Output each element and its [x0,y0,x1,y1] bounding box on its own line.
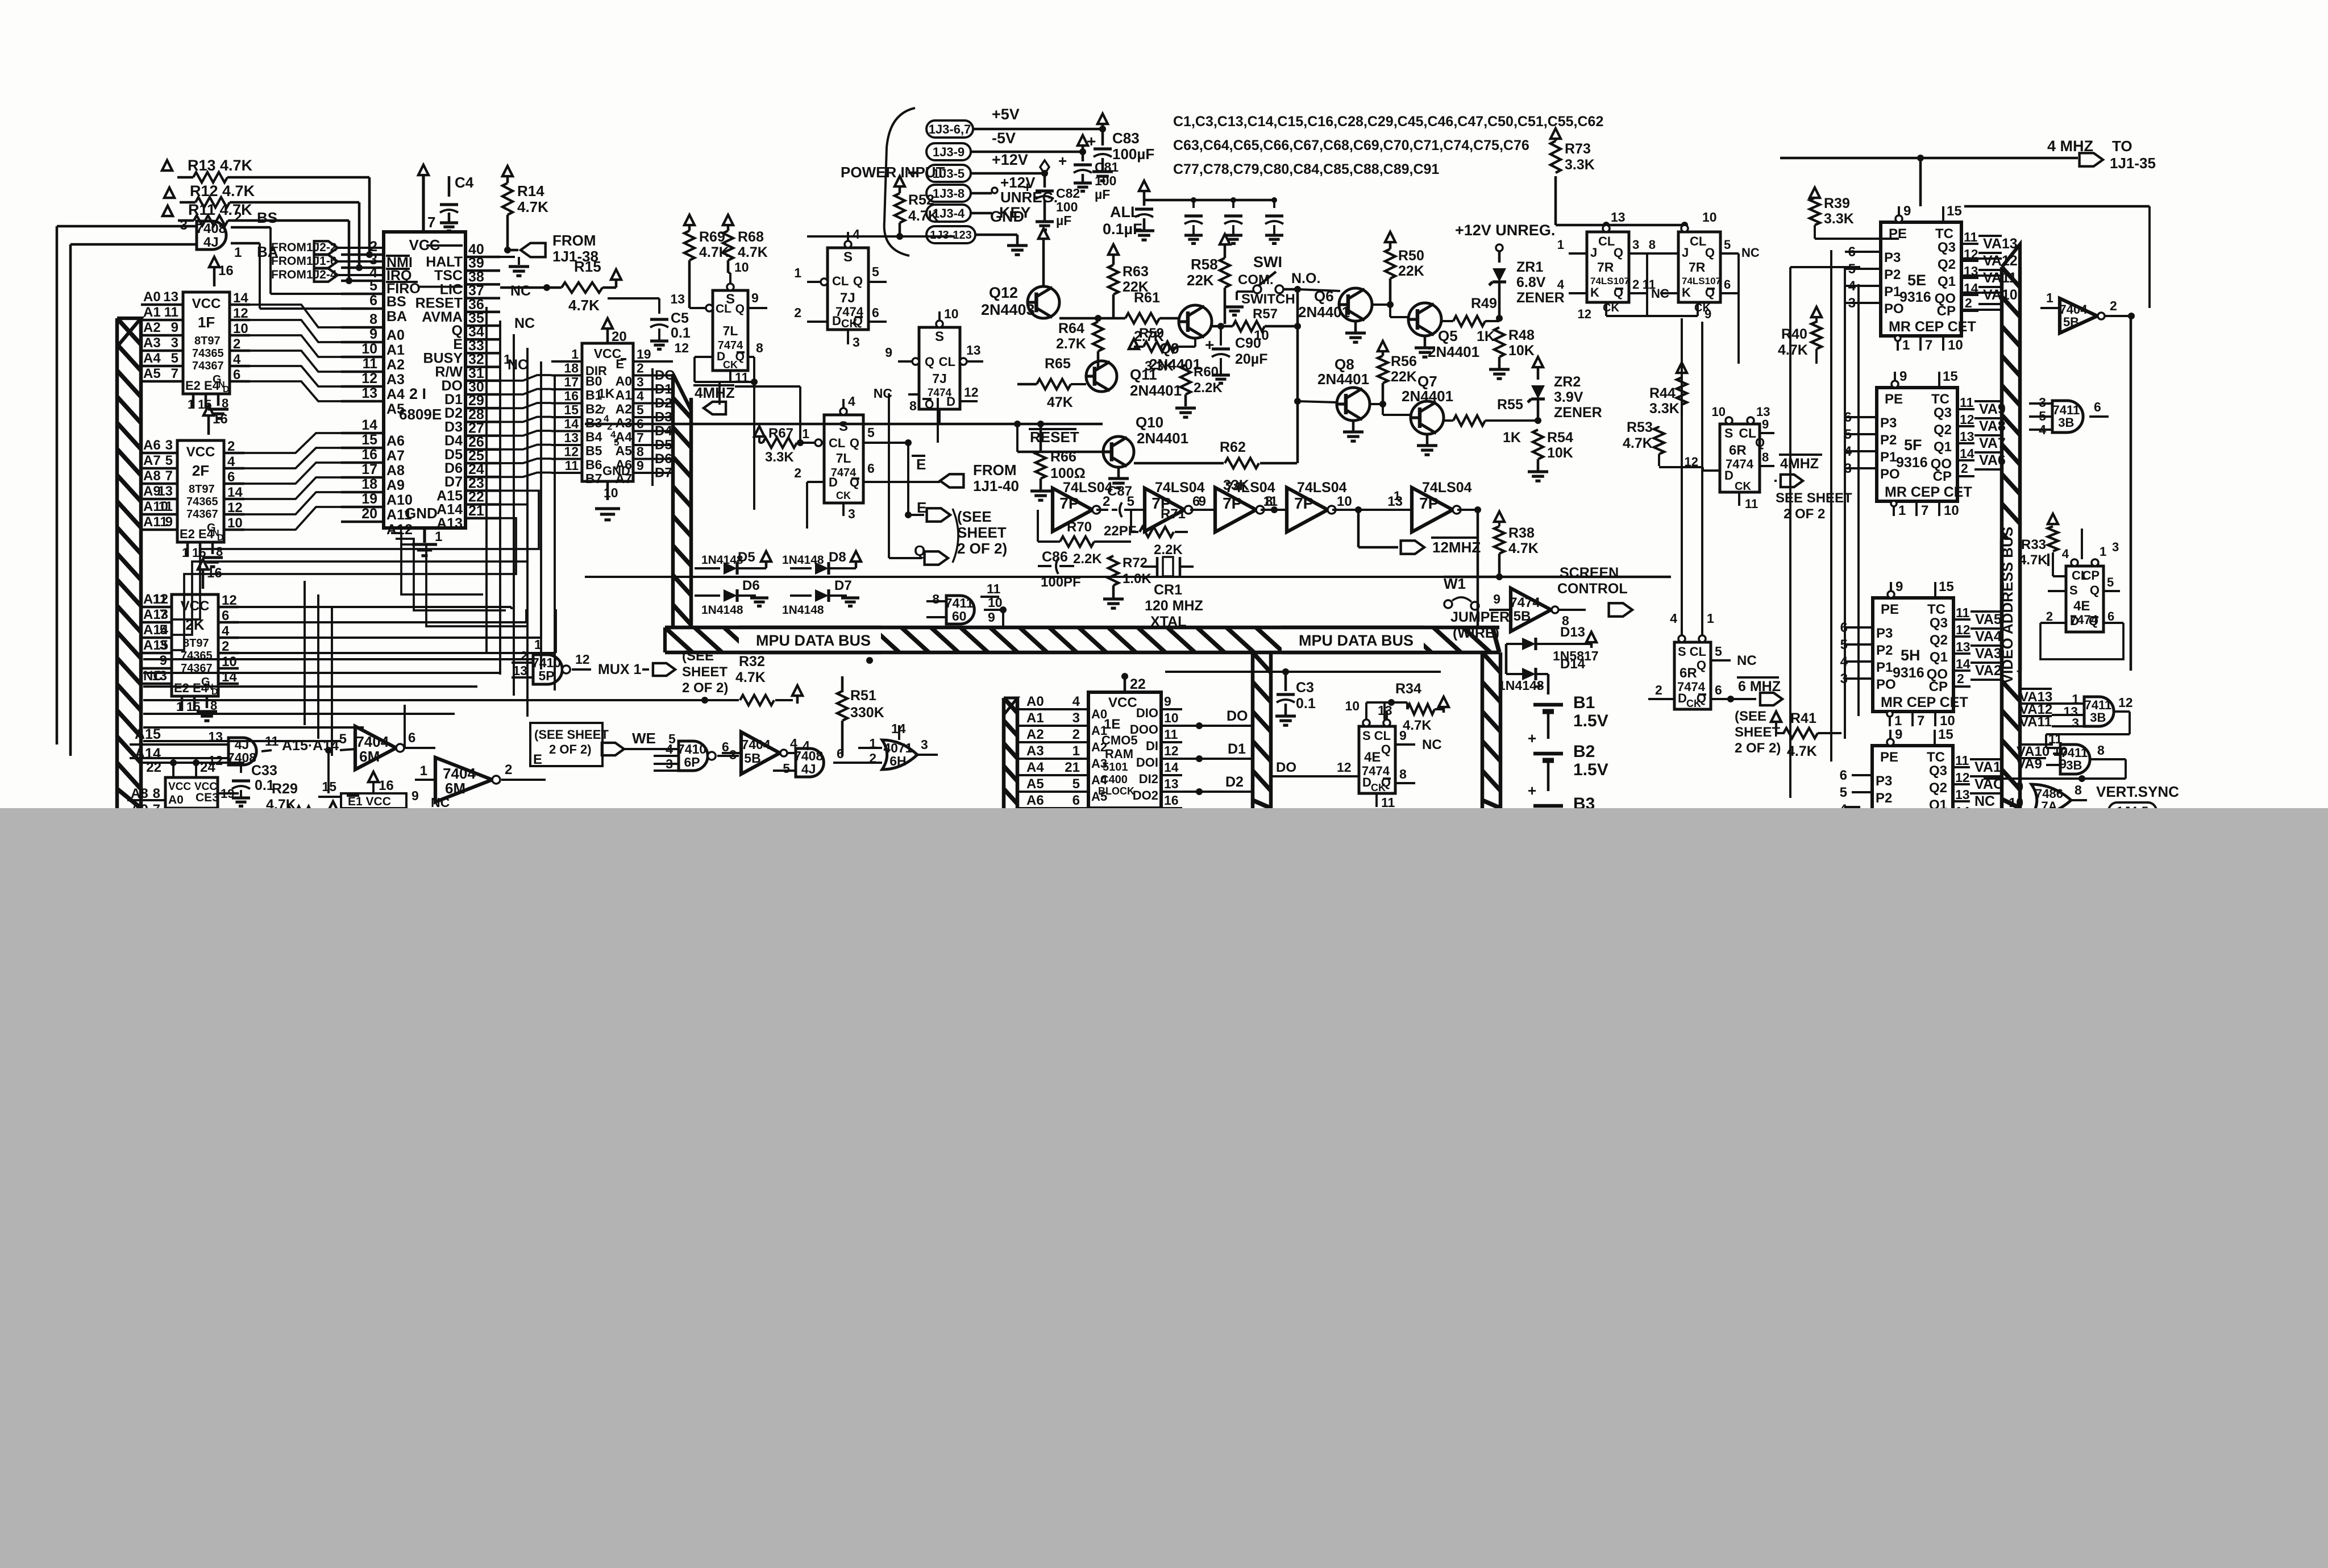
svg-text:NC: NC [1737,653,1757,668]
svg-text:16: 16 [564,389,579,404]
svg-text:1: 1 [234,245,242,260]
svg-text:20: 20 [361,506,377,522]
svg-text:B2: B2 [585,402,602,417]
svg-text:8T97: 8T97 [189,483,215,496]
svg-text:NC: NC [510,283,531,299]
svg-text:1J3-5: 1J3-5 [933,167,965,181]
svg-text:11: 11 [1956,605,1970,620]
svg-text:9: 9 [1762,417,1769,431]
svg-text:R68: R68 [738,229,764,245]
svg-text:Q: Q [1705,285,1715,300]
svg-text:2: 2 [1072,727,1080,742]
svg-text:4MHZ: 4MHZ [1780,456,1819,472]
svg-text:Q: Q [1614,285,1623,300]
svg-text:100: 100 [1056,199,1078,214]
svg-text:5B: 5B [2063,315,2079,329]
svg-text:16: 16 [379,778,394,793]
svg-text:1: 1 [1894,713,1902,729]
svg-text:NC: NC [431,795,450,810]
svg-text:D5: D5 [655,438,672,453]
svg-text:11: 11 [153,592,167,607]
svg-text:VCC: VCC [168,781,191,793]
svg-text:E1 VCC: E1 VCC [348,795,391,808]
svg-text:5: 5 [1072,776,1080,792]
svg-text:7404: 7404 [741,737,770,752]
svg-text:15: 15 [322,779,336,794]
svg-text:1: 1 [2046,290,2053,305]
svg-text:PE: PE [1885,392,1903,407]
svg-text:D6: D6 [655,451,672,467]
svg-text:11: 11 [159,499,173,514]
svg-text:2: 2 [2046,609,2053,623]
svg-text:Q: Q [925,355,934,369]
svg-text:P2: P2 [1884,267,1901,282]
svg-text:13: 13 [1960,429,1974,444]
svg-text:VCC: VCC [192,296,221,311]
svg-text:SWI: SWI [1253,253,1282,271]
svg-text:4.7K: 4.7K [1778,342,1808,358]
svg-text:MR CEP CET: MR CEP CET [1881,694,1968,710]
svg-text:Q: Q [1755,435,1765,450]
svg-text:+: + [1205,336,1214,353]
svg-text:CK: CK [836,490,851,501]
svg-text:8: 8 [153,786,160,801]
svg-text:16: 16 [218,263,234,278]
svg-text:13: 13 [670,292,685,306]
svg-text:12: 12 [1578,307,1591,321]
svg-text:20µF: 20µF [1235,351,1267,367]
svg-text:14: 14 [361,417,377,433]
svg-text:C63,C64,C65,C66,C67,C68,C69,C7: C63,C64,C65,C66,C67,C68,C69,C70,C71,C74,… [1173,138,1529,153]
svg-text:C400: C400 [1100,773,1128,786]
svg-text:NC: NC [1422,737,1442,752]
svg-text:Q3: Q3 [1938,240,1956,255]
svg-text:6: 6 [408,730,415,746]
svg-text:330K: 330K [850,705,884,721]
svg-text:9: 9 [1164,694,1171,709]
svg-text:6: 6 [872,305,879,320]
svg-text:10: 10 [227,515,243,531]
svg-text:R38: R38 [1508,525,1535,541]
svg-text:R41: R41 [1790,710,1816,726]
svg-text:1K: 1K [1477,328,1495,344]
svg-text:2: 2 [1655,683,1662,697]
svg-text:12: 12 [575,652,590,667]
svg-text:13: 13 [966,343,981,357]
svg-text:1: 1 [1707,611,1714,626]
svg-text:R64: R64 [1058,321,1084,336]
svg-text:7: 7 [427,214,435,231]
svg-text:Q: Q [1705,246,1715,260]
svg-text:8T97: 8T97 [183,637,209,650]
svg-text:14: 14 [1956,656,1971,671]
svg-text:CL: CL [1374,729,1391,743]
svg-text:1.0K: 1.0K [1123,571,1151,587]
svg-text:12MHZ: 12MHZ [1432,539,1481,556]
svg-text:5: 5 [872,264,879,279]
svg-text:3: 3 [637,375,644,389]
svg-text:SEE SHEET: SEE SHEET [1776,490,1852,506]
svg-text:D: D [1724,468,1733,483]
svg-text:8: 8 [1762,450,1769,464]
svg-text:5: 5 [171,351,178,366]
svg-text:9: 9 [1895,727,1902,742]
svg-text:R33: R33 [2021,537,2046,552]
svg-text:16: 16 [361,447,377,463]
svg-text:10: 10 [604,485,618,500]
svg-text:1J3-123: 1J3-123 [930,229,971,242]
svg-text:2.2K: 2.2K [1154,542,1183,558]
svg-text:(SEE: (SEE [682,648,714,664]
svg-text:1J1-38: 1J1-38 [552,248,598,265]
svg-text:5: 5 [1127,494,1134,509]
svg-text:2: 2 [1965,296,1972,310]
svg-text:TC: TC [1927,750,1945,765]
svg-text:R50: R50 [1398,248,1424,264]
svg-text:19: 19 [361,491,377,507]
svg-text:7: 7 [1917,713,1924,729]
svg-text:8: 8 [1649,238,1656,252]
svg-text:B4: B4 [585,430,602,444]
svg-text:A7: A7 [143,453,161,468]
svg-text:CK: CK [1371,782,1386,793]
svg-text:A9: A9 [386,477,405,493]
svg-text:R67: R67 [768,426,793,441]
svg-text:6H: 6H [889,754,906,768]
svg-text:5101: 5101 [1103,761,1128,773]
svg-text:A3: A3 [386,372,405,388]
svg-text:Q: Q [1381,742,1391,756]
svg-text:5E: 5E [1907,272,1926,289]
svg-text:9: 9 [885,345,892,360]
svg-text:4.7K: 4.7K [735,669,766,685]
svg-text:Q: Q [735,302,745,315]
svg-text:20: 20 [612,329,627,344]
svg-text:R48: R48 [1508,327,1535,343]
svg-text:R73: R73 [1565,141,1591,157]
svg-text:Q1: Q1 [1930,650,1948,665]
svg-text:D14: D14 [1560,656,1586,672]
svg-text:74LS04: 74LS04 [1225,480,1275,496]
svg-text:10K: 10K [1508,343,1535,359]
svg-text:VERT.SYNC: VERT.SYNC [2096,783,2179,800]
svg-text:100: 100 [1095,173,1116,188]
svg-text:12: 12 [964,385,979,400]
svg-text:7P: 7P [1223,494,1242,512]
svg-text:CK: CK [1686,698,1701,709]
svg-text:15: 15 [1939,579,1954,594]
svg-text:3.3K: 3.3K [1145,359,1174,374]
svg-text:13: 13 [1955,787,1970,802]
svg-text:10: 10 [233,321,248,336]
svg-text:C5: C5 [671,310,689,326]
svg-text:A4: A4 [143,351,161,366]
svg-text:3: 3 [165,438,173,453]
svg-text:11: 11 [1955,753,1969,768]
svg-text:1K: 1K [1503,430,1521,446]
svg-text:6P: 6P [684,755,700,770]
svg-text:A11: A11 [143,514,168,530]
svg-text:R51: R51 [850,688,876,704]
svg-text:E: E [533,752,542,767]
svg-text:ALL: ALL [1110,203,1140,221]
svg-text:4E: 4E [1364,750,1381,765]
svg-text:A1: A1 [143,305,161,320]
svg-text:2 OF 2): 2 OF 2) [549,742,592,756]
svg-text:74365: 74365 [192,347,224,360]
svg-text:TC: TC [1927,602,1945,617]
svg-text:9316: 9316 [1899,289,1931,305]
svg-text:A4: A4 [616,430,633,444]
svg-text:100Ω: 100Ω [1050,465,1086,481]
svg-text:4: 4 [848,394,855,409]
svg-text:22: 22 [1130,676,1146,692]
svg-text:1: 1 [420,763,427,779]
svg-text:4.7K: 4.7K [1508,540,1539,556]
svg-text:2 I: 2 I [409,385,426,402]
svg-text:1: 1 [182,546,189,560]
svg-text:14: 14 [564,417,579,431]
svg-text:TC: TC [1935,226,1953,242]
svg-text:13: 13 [163,289,178,305]
svg-text:FROM: FROM [973,461,1017,479]
svg-text:S: S [2069,583,2078,597]
svg-text:13: 13 [1611,210,1626,224]
svg-text:3: 3 [1632,238,1639,252]
svg-text:D: D [1678,691,1687,705]
svg-text:A6: A6 [1026,793,1044,808]
svg-text:PE: PE [1881,602,1899,617]
svg-text:74367: 74367 [192,360,224,372]
svg-text:VA4: VA4 [1975,629,2002,644]
svg-text:CL: CL [832,274,849,288]
svg-text:11: 11 [1745,497,1758,511]
svg-text:2: 2 [1632,277,1639,292]
svg-text:0.1: 0.1 [671,325,691,341]
svg-text:1F: 1F [198,314,215,331]
svg-text:R54: R54 [1547,430,1573,446]
svg-text:B1: B1 [585,388,602,402]
svg-text:VA3: VA3 [1975,646,2002,662]
svg-text:VA13: VA13 [1983,236,2018,252]
svg-text:5B: 5B [1514,609,1531,624]
svg-text:9316: 9316 [1893,665,1924,681]
svg-text:1: 1 [188,397,194,411]
svg-text:4.7K: 4.7K [2019,552,2048,568]
svg-text:3B: 3B [2058,415,2074,430]
svg-text:9: 9 [988,610,995,625]
svg-text:2: 2 [1957,671,1964,686]
svg-text:SWITCH: SWITCH [1241,292,1295,307]
svg-text:9: 9 [2059,756,2067,771]
svg-text:6809E: 6809E [399,406,442,423]
svg-text:A2: A2 [386,357,405,373]
svg-text:10: 10 [1940,713,1955,729]
svg-text:VA2: VA2 [1975,663,2002,679]
svg-text:14: 14 [1164,760,1179,775]
svg-text:4.7K: 4.7K [517,198,548,215]
svg-text:RESET: RESET [1030,429,1079,446]
svg-text:D5: D5 [738,550,755,565]
svg-text:CK: CK [1735,480,1751,493]
svg-text:5: 5 [339,731,347,747]
svg-text:7: 7 [1921,503,1928,518]
svg-text:VA9: VA9 [1979,401,2006,417]
svg-text:µF: µF [1095,187,1110,202]
svg-text:VA12: VA12 [1983,253,2018,269]
svg-text:7J: 7J [840,290,855,306]
svg-text:6: 6 [1072,793,1080,808]
svg-text:1N4148: 1N4148 [782,554,824,567]
svg-text:C90: C90 [1235,335,1261,351]
svg-text:S: S [1724,426,1733,440]
svg-text:A8: A8 [386,463,405,479]
svg-text:DI: DI [1146,739,1158,753]
svg-text:A5: A5 [1026,776,1044,792]
svg-text:R44: R44 [1649,385,1676,401]
svg-text:A4: A4 [1026,760,1044,775]
svg-text:A7: A7 [386,448,405,464]
svg-text:3: 3 [729,747,737,762]
svg-text:2.7K: 2.7K [1056,336,1086,352]
svg-text:R29: R29 [272,781,298,797]
svg-text:6M: 6M [359,748,380,765]
svg-text:R32: R32 [739,654,765,669]
svg-text:D7: D7 [834,578,852,593]
svg-text:CR1: CR1 [1154,582,1182,598]
svg-text:A6: A6 [616,457,632,472]
svg-text:10: 10 [1164,710,1179,725]
svg-text:DO2: DO2 [1133,788,1158,802]
svg-text:C3: C3 [1296,680,1314,696]
svg-text:R39: R39 [1824,196,1850,211]
svg-text:11: 11 [1960,395,1974,410]
svg-text:(WIRE): (WIRE) [1453,625,1499,641]
svg-text:C1,C3,C13,C14,C15,C16,C28,C29,: C1,C3,C13,C14,C15,C16,C28,C29,C45,C46,C4… [1173,114,1603,130]
svg-text:R62: R62 [1220,439,1246,455]
svg-text:S: S [935,329,944,344]
svg-text:E: E [916,456,926,473]
svg-text:+: + [1058,152,1067,169]
svg-text:E: E [917,499,926,516]
svg-text:CL: CL [939,355,955,369]
svg-text:21: 21 [1065,760,1080,775]
svg-text:11: 11 [1643,277,1656,292]
svg-text:2.2K: 2.2K [1194,380,1223,396]
svg-text:FROM: FROM [552,232,596,249]
svg-text:6: 6 [233,367,240,382]
svg-text:+: + [1528,782,1536,799]
svg-text:12: 12 [1960,412,1974,427]
svg-text:A8: A8 [131,786,148,801]
svg-text:2: 2 [2110,298,2117,313]
svg-text:14: 14 [227,485,243,500]
svg-text:A15: A15 [135,726,161,742]
svg-text:4J: 4J [801,762,816,776]
svg-text:13: 13 [1956,639,1971,654]
svg-text:1J3-8: 1J3-8 [933,186,965,201]
svg-text:8: 8 [909,398,917,413]
svg-text:Q: Q [1697,658,1706,672]
svg-text:12: 12 [1164,743,1179,758]
svg-text:18: 18 [361,476,377,492]
svg-text:+: + [1023,178,1032,196]
svg-text:3: 3 [2112,540,2119,554]
svg-text:NC: NC [1741,246,1760,260]
svg-text:4: 4 [227,454,235,469]
svg-text:2 OF 2): 2 OF 2) [682,680,728,696]
svg-text:Q: Q [2090,583,2100,597]
svg-text:Q2: Q2 [1938,257,1956,272]
svg-text:8: 8 [2097,743,2105,758]
svg-text:3.3K: 3.3K [1649,401,1680,417]
svg-text:TC: TC [1931,392,1949,407]
svg-text:Q3: Q3 [1934,405,1952,421]
svg-text:2N4403: 2N4403 [981,301,1035,318]
svg-text:14: 14 [233,290,248,306]
svg-text:12: 12 [1337,760,1352,775]
svg-text:2: 2 [505,762,512,777]
svg-text:1: 1 [1557,238,1564,252]
svg-text:1: 1 [794,265,801,280]
svg-text:A11: A11 [386,507,412,523]
svg-text:5H: 5H [1901,647,1920,664]
svg-text:15: 15 [361,432,377,448]
svg-text:Q: Q [853,274,863,288]
svg-text:3.3K: 3.3K [1824,211,1854,227]
svg-text:9: 9 [369,326,377,342]
svg-text:MPU DATA BUS: MPU DATA BUS [756,632,871,649]
svg-text:3: 3 [921,737,928,752]
svg-text:C83: C83 [1112,130,1140,147]
svg-text:A7: A7 [616,471,632,486]
svg-text:11: 11 [565,458,579,473]
svg-text:R40: R40 [1781,326,1807,342]
svg-text:D: D [217,533,224,543]
svg-text:7P: 7P [1059,494,1079,512]
svg-text:11: 11 [1263,494,1278,509]
svg-text:K: K [1682,285,1691,300]
svg-text:VA5: VA5 [1975,612,2002,627]
svg-text:RAM: RAM [1105,747,1133,761]
svg-text:CP: CP [1929,679,1948,694]
svg-text:D4: D4 [655,423,672,439]
svg-text:WE: WE [632,730,656,747]
svg-text:2: 2 [1961,461,1968,476]
svg-text:Q12: Q12 [989,284,1018,301]
svg-text:5: 5 [637,402,644,417]
svg-text:4: 4 [666,742,673,756]
svg-text:A2: A2 [143,320,161,335]
svg-text:2: 2 [227,439,235,454]
svg-text:21: 21 [468,503,484,519]
svg-text:CL: CL [1690,644,1706,659]
svg-text:ZENER: ZENER [1516,290,1565,306]
svg-text:1N4148: 1N4148 [701,604,743,617]
svg-text:14: 14 [1960,446,1974,461]
svg-text:10: 10 [2009,795,2023,810]
svg-text:4.7K: 4.7K [1623,435,1653,451]
svg-text:R12 4.7K: R12 4.7K [190,182,255,199]
svg-text:+12V: +12V [992,151,1028,168]
svg-text:3.3K: 3.3K [765,450,794,465]
svg-text:11: 11 [1381,795,1395,810]
svg-text:5B: 5B [744,751,760,766]
svg-text:C33: C33 [251,763,277,779]
svg-text:74367: 74367 [186,508,218,521]
svg-text:6R: 6R [1680,666,1697,681]
svg-text:MPU DATA BUS: MPU DATA BUS [1299,632,1414,649]
